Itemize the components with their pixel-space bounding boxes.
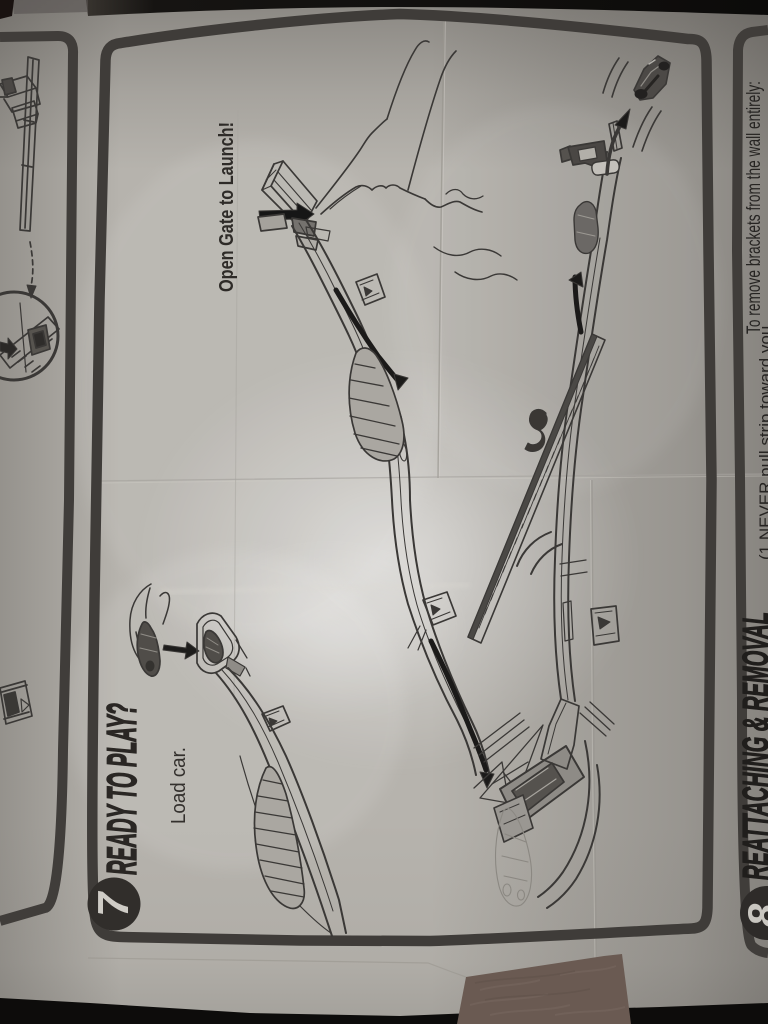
- svg-text:Load car.: Load car.: [168, 747, 190, 824]
- svg-text:To remove brackets from the wa: To remove brackets from the wall entirel…: [744, 81, 765, 334]
- svg-text:8: 8: [739, 903, 768, 927]
- svg-text:REATTACHING & REMOVAL: REATTACHING & REMOVAL: [735, 612, 768, 880]
- svg-text:7: 7: [89, 890, 138, 917]
- svg-text:Open Gate to Launch!: Open Gate to Launch!: [216, 122, 238, 292]
- svg-text:READY TO PLAY?: READY TO PLAY?: [98, 703, 145, 875]
- svg-text:(1 NEVER pull strip toward you: (1 NEVER pull strip toward you: [756, 326, 768, 560]
